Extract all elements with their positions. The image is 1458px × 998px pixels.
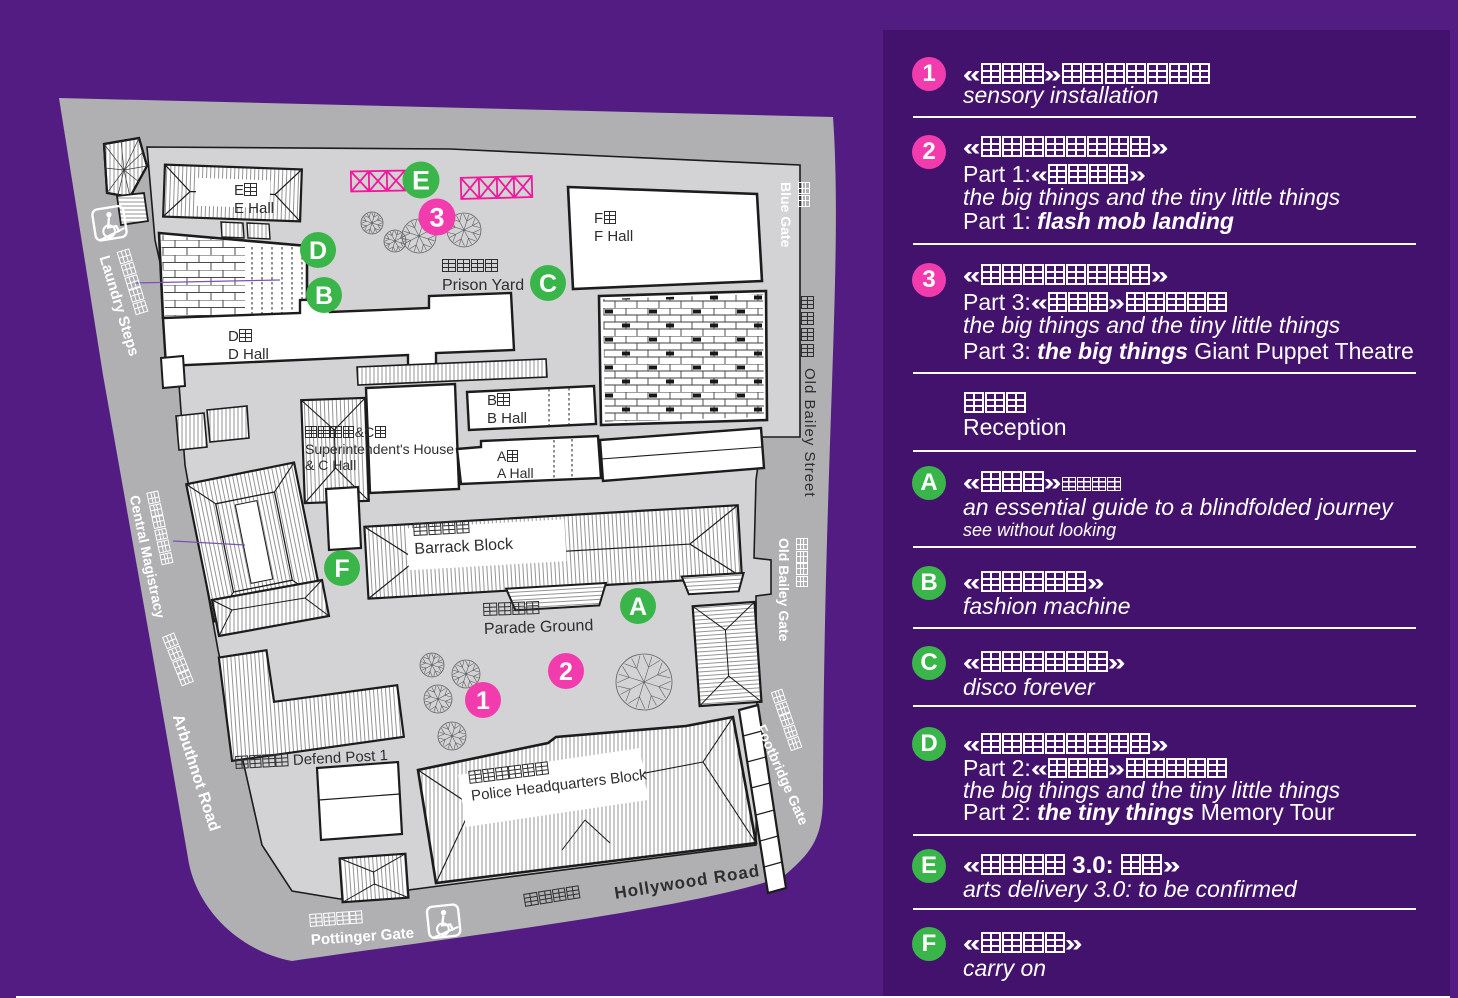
svg-text:D: D <box>309 237 327 265</box>
svg-text:1: 1 <box>476 687 490 715</box>
svg-text:C: C <box>539 270 557 298</box>
svg-text:3: 3 <box>429 202 444 232</box>
svg-text:F: F <box>334 555 349 583</box>
svg-text:2: 2 <box>559 658 573 686</box>
svg-text:B: B <box>315 282 333 310</box>
svg-text:A: A <box>629 593 647 621</box>
svg-text:E: E <box>412 165 430 195</box>
